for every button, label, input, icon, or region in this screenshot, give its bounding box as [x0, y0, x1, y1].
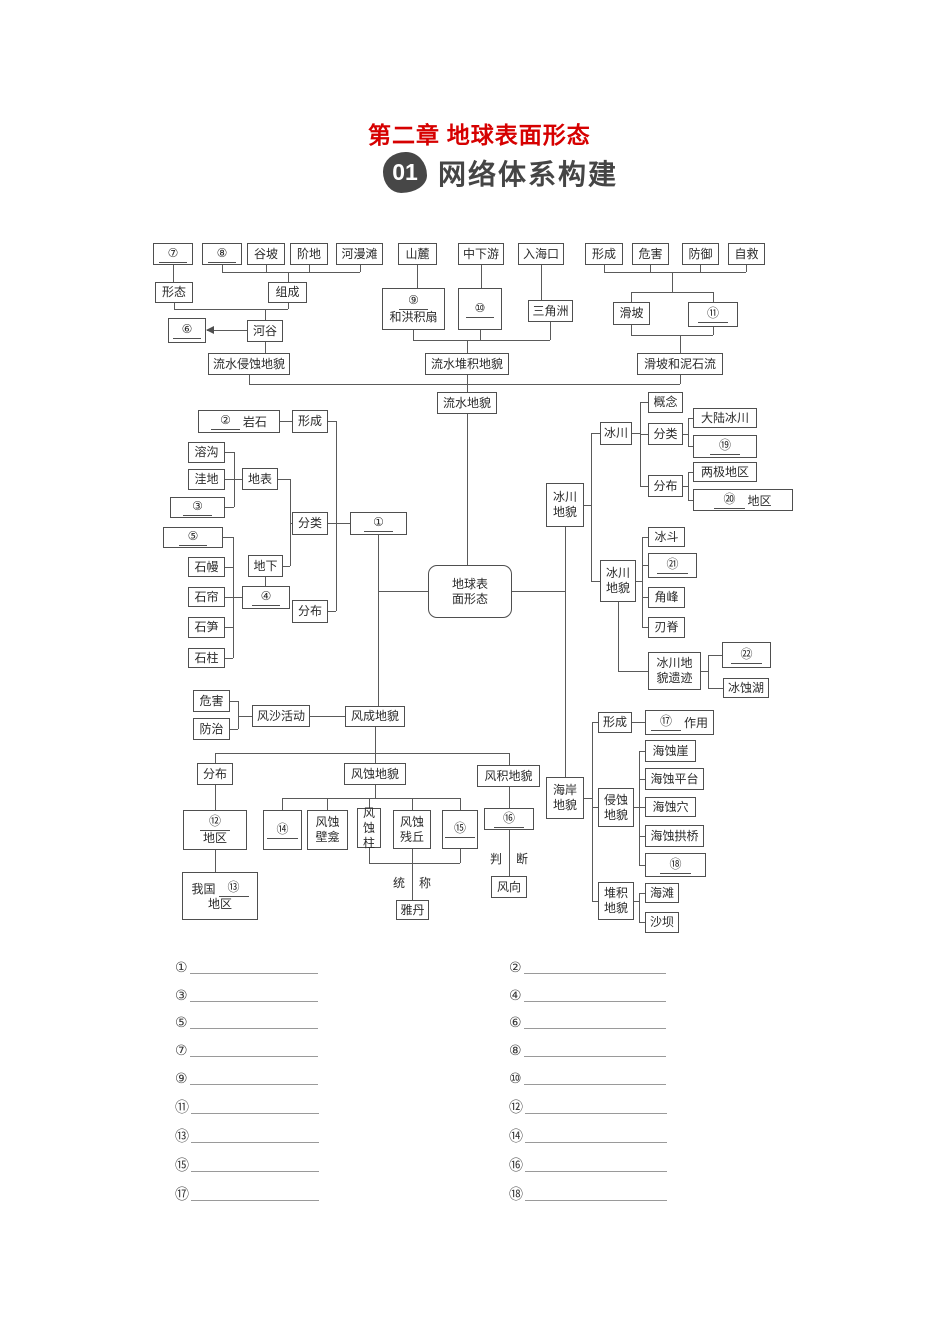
node-formation-slide: 形成	[585, 243, 623, 265]
node-judge-label: 判断	[485, 852, 533, 867]
node-blank-17-action: ⑰作用	[645, 710, 714, 735]
node-text: ⑨	[399, 293, 428, 310]
answer-line	[190, 1043, 318, 1057]
connector-line	[230, 729, 238, 730]
node-text: ⑫	[200, 814, 230, 831]
node-floodplain: 河漫滩	[336, 243, 383, 265]
node-text: 柱	[363, 836, 375, 851]
node-wind-sand-activity: 风沙活动	[252, 705, 310, 727]
node-text: 地区	[208, 897, 232, 912]
answer-number: ⑰	[175, 1187, 189, 1201]
node-cirque: 冰斗	[648, 527, 685, 547]
node-text: 防治	[199, 722, 223, 737]
node-text: 和洪积扇	[389, 310, 437, 325]
connector-line	[680, 375, 681, 384]
node-text: 地区	[748, 494, 772, 509]
node-wind-erosion-niche: 风蚀壁龛	[307, 810, 348, 850]
connector-line	[375, 785, 376, 798]
node-text: 分布	[653, 479, 677, 494]
answer-blank-⑱: ⑱	[509, 1187, 667, 1201]
connector-line	[412, 798, 413, 810]
node-formation-karst: 形成	[292, 410, 328, 433]
node-text: 残丘	[400, 830, 424, 845]
node-wind-erosion-landform: 风蚀地貌	[344, 763, 406, 785]
node-stone-mantle: 石幔	[188, 557, 225, 577]
node-text: 洼地	[194, 472, 218, 487]
connector-line	[280, 421, 292, 422]
connector-line	[225, 567, 233, 568]
answer-number: ①	[175, 960, 188, 974]
node-stone-curtain: 石帘	[188, 587, 225, 607]
connector-line	[512, 591, 565, 592]
node-text: 流水堆积地貌	[431, 357, 503, 372]
node-prevention: 防治	[193, 718, 230, 740]
answer-blank-②: ②	[509, 960, 666, 974]
connector-line	[640, 402, 648, 403]
node-glacier: 冰川	[600, 422, 632, 445]
connector-line	[467, 375, 468, 392]
node-text: ⑭	[267, 822, 297, 839]
node-blank-10: ⑩	[458, 288, 502, 330]
node-stalagmite: 石笋	[188, 617, 225, 638]
node-text: 地球表	[452, 577, 488, 592]
node-text: 雅丹	[400, 903, 424, 918]
connector-line	[640, 434, 648, 435]
node-horn-peak: 角峰	[648, 587, 685, 608]
node-classification-glacier: 分类	[648, 423, 683, 445]
node-text: 大陆冰川	[701, 411, 749, 426]
node-text: 形成	[592, 247, 616, 262]
connector-line	[467, 340, 468, 353]
connector-line	[708, 688, 723, 689]
node-blank-16: ⑯	[484, 808, 534, 830]
node-blank-6: ⑥	[168, 318, 206, 343]
answer-blank-③: ③	[175, 988, 318, 1002]
node-text: 形态	[162, 285, 186, 300]
node-text: 冰川地	[656, 656, 692, 671]
connector-line	[412, 849, 413, 863]
answer-number: ⑯	[509, 1158, 523, 1172]
node-text: 角峰	[654, 590, 678, 605]
connector-line	[509, 753, 510, 765]
node-text: 地区	[203, 831, 227, 846]
node-text: ⑱	[660, 857, 690, 874]
node-text: 分布	[298, 604, 322, 619]
answer-line	[525, 1129, 667, 1143]
connector-line	[713, 292, 714, 302]
connector-line	[640, 486, 648, 487]
connector-line	[249, 375, 250, 384]
node-text: ⑬	[219, 880, 249, 897]
connector-line	[369, 863, 460, 864]
connector-line	[618, 671, 648, 672]
node-text: ⑩	[466, 301, 495, 318]
answer-number: ②	[509, 960, 522, 974]
node-blank-19: ⑲	[693, 435, 757, 458]
node-text: ⑥	[173, 322, 202, 339]
connector-line	[413, 330, 414, 340]
answer-blank-⑬: ⑬	[175, 1129, 319, 1143]
node-text: 蚀	[363, 821, 375, 836]
answer-number: ⑱	[509, 1187, 523, 1201]
node-text: 冰川	[553, 490, 577, 505]
node-formation-coastal: 形成	[598, 712, 632, 733]
node-text: 阶地	[297, 247, 321, 262]
answer-blank-⑥: ⑥	[509, 1015, 666, 1029]
node-text: 风蚀地貌	[351, 767, 399, 782]
connector-line	[375, 727, 376, 753]
node-arete: 刃脊	[648, 617, 685, 638]
answer-line	[524, 1071, 666, 1085]
node-text: 海蚀平台	[650, 772, 698, 787]
node-yardang: 雅丹	[396, 900, 429, 920]
node-blank-22: ㉒	[722, 642, 771, 668]
node-text: 石幔	[194, 560, 218, 575]
node-text: 分类	[298, 516, 322, 531]
node-piedmont: 山麓	[398, 243, 437, 265]
node-text: 我国	[191, 882, 215, 897]
node-beach: 海滩	[645, 883, 679, 903]
node-blank-15: ⑮	[442, 810, 478, 849]
answer-line	[191, 1129, 319, 1143]
node-defense: 防御	[682, 243, 719, 265]
node-blank-3: ③	[170, 497, 225, 518]
node-text: ㉒	[731, 647, 761, 664]
node-concept: 概念	[648, 392, 683, 413]
node-text: 岩石	[243, 415, 267, 430]
answer-line	[525, 1187, 667, 1201]
answer-blank-⑧: ⑧	[509, 1043, 666, 1057]
node-text: 地貌	[553, 798, 577, 813]
node-blank-4: ④	[242, 586, 290, 609]
connector-line	[215, 850, 216, 872]
answer-number: ⑩	[509, 1071, 522, 1085]
connector-line	[591, 433, 600, 434]
node-distribution-karst: 分布	[292, 600, 328, 623]
connector-line	[173, 265, 174, 282]
node-text: 滑坡和泥石流	[644, 357, 716, 372]
node-text: 地貌	[553, 505, 577, 520]
node-text: 自救	[734, 247, 758, 262]
node-text: 刃脊	[654, 620, 678, 635]
node-landslide: 滑坡	[613, 302, 650, 325]
node-text: 侵蚀	[604, 793, 628, 808]
node-river-valley: 河谷	[247, 320, 283, 342]
connector-line	[215, 785, 216, 810]
node-text: ⑰	[651, 714, 681, 731]
answer-blank-①: ①	[175, 960, 318, 974]
node-text: ④	[252, 589, 281, 606]
node-text: 地貌	[604, 808, 628, 823]
node-sea-notch: 海蚀穴	[645, 797, 696, 817]
node-glacial-relics: 冰川地貌遗迹	[648, 652, 701, 690]
node-underground: 地下	[248, 555, 283, 577]
connector-line	[708, 655, 722, 656]
connector-line	[631, 292, 632, 302]
answer-line	[190, 960, 318, 974]
node-blank-14: ⑭	[263, 810, 302, 850]
answer-blank-⑭: ⑭	[509, 1129, 667, 1143]
node-text: 危害	[638, 247, 662, 262]
node-distribution-glacier: 分布	[648, 475, 683, 497]
connector-line	[278, 479, 290, 480]
connector-line	[604, 265, 605, 272]
answer-line	[525, 1158, 667, 1172]
connector-line	[378, 535, 379, 706]
arrowhead-left	[206, 326, 214, 334]
connector-line	[688, 418, 689, 446]
connector-line	[328, 523, 350, 524]
connector-line	[650, 265, 651, 272]
connector-line	[591, 433, 592, 581]
node-valley-slope: 谷坡	[247, 243, 285, 265]
connector-line	[288, 272, 289, 282]
answer-line	[524, 988, 666, 1002]
connector-line	[631, 335, 713, 336]
answer-blank-⑦: ⑦	[175, 1043, 318, 1057]
node-delta: 三角洲	[528, 300, 573, 322]
answer-line	[524, 1015, 666, 1029]
node-composition: 组成	[268, 282, 307, 303]
node-distribution-wind: 分布	[197, 763, 233, 785]
node-text: 海滩	[650, 886, 674, 901]
connector-line	[266, 265, 267, 272]
node-text: 沙坝	[650, 915, 674, 930]
connector-line	[639, 893, 640, 922]
connector-line	[642, 537, 643, 627]
node-text: 地表	[248, 472, 272, 487]
node-continental-glacier: 大陆冰川	[693, 408, 757, 428]
node-text: 断	[516, 852, 528, 867]
answer-blank-⑫: ⑫	[509, 1100, 667, 1114]
node-text: 冰川	[604, 426, 628, 441]
connector-line	[680, 335, 681, 353]
connector-line	[701, 671, 708, 672]
connector-line	[328, 611, 336, 612]
node-text: 风成地貌	[351, 709, 399, 724]
node-text: 作用	[684, 716, 708, 731]
node-text: 面形态	[452, 592, 488, 607]
node-wind-erosion-hill: 风蚀残丘	[393, 810, 431, 849]
connector-line	[591, 581, 600, 582]
connector-line	[249, 384, 680, 385]
node-text: 地貌	[606, 581, 630, 596]
connector-line	[541, 265, 542, 300]
node-text: ⑦	[159, 246, 188, 263]
node-glacial-lake: 冰蚀湖	[723, 678, 769, 698]
answer-number: ⑮	[175, 1158, 189, 1172]
node-mid-lower-reach: 中下游	[458, 243, 504, 265]
connector-line	[265, 577, 266, 586]
answer-blank-⑤: ⑤	[175, 1015, 318, 1029]
connector-line	[584, 505, 591, 506]
connector-line	[328, 421, 336, 422]
answer-blank-⑮: ⑮	[175, 1158, 319, 1172]
connector-line	[360, 265, 361, 272]
node-text: 石帘	[194, 590, 218, 605]
node-text: 判	[490, 852, 502, 867]
connector-line	[481, 265, 482, 288]
node-text: 冰蚀湖	[728, 681, 764, 696]
connector-line	[238, 701, 239, 729]
connector-line	[375, 753, 376, 763]
node-text: 风积地貌	[484, 769, 532, 784]
node-text: 海岸	[553, 783, 577, 798]
connector-line	[215, 753, 216, 763]
answer-line	[190, 1071, 318, 1085]
node-blank-13-our-region: 我国⑬地区	[182, 872, 258, 920]
node-wind-erosion-pillar: 风蚀柱	[357, 808, 381, 848]
node-fluvial-deposition: 流水堆积地貌	[425, 353, 509, 375]
answer-number: ⑭	[509, 1129, 523, 1143]
connector-line	[631, 325, 632, 335]
node-sandbar: 沙坝	[645, 912, 679, 933]
answer-blank-④: ④	[509, 988, 666, 1002]
node-blank-2-rock: ②岩石	[198, 410, 280, 433]
answer-number: ⑥	[509, 1015, 522, 1029]
node-text: ③	[183, 499, 212, 516]
node-text: 石柱	[194, 651, 218, 666]
answer-number: ⑪	[175, 1100, 189, 1114]
connector-line	[746, 265, 747, 272]
node-text: ⑳	[714, 492, 744, 509]
node-wind-deposition-landform: 风积地貌	[477, 765, 540, 787]
node-text: 溶沟	[194, 445, 218, 460]
node-erosion-landform: 侵蚀地貌	[598, 788, 634, 827]
connector-line	[378, 591, 428, 592]
connector-line	[336, 421, 337, 611]
node-sea-arch: 海蚀拱桥	[645, 825, 704, 847]
node-text: 海蚀崖	[652, 744, 688, 759]
node-text: 形成	[603, 715, 627, 730]
node-deposition-landform: 堆积地貌	[598, 882, 634, 920]
node-text: 貌遗迹	[656, 671, 692, 686]
node-text: 风蚀	[400, 815, 424, 830]
node-wind-direction: 风向	[491, 876, 527, 898]
node-polar-region: 两极地区	[693, 462, 757, 482]
connector-line	[640, 402, 641, 486]
node-text: 统	[393, 876, 405, 891]
connector-line	[467, 414, 468, 565]
node-text: 河漫滩	[341, 247, 377, 262]
connector-line	[223, 537, 233, 538]
connector-line	[413, 340, 550, 341]
connector-line	[708, 655, 709, 688]
node-solution-groove: 溶沟	[188, 442, 225, 463]
node-text: 危害	[199, 694, 223, 709]
node-text: ㉑	[657, 557, 687, 574]
node-text: 河谷	[253, 324, 277, 339]
connector-line	[282, 798, 283, 810]
node-blank-9: ⑨和洪积扇	[382, 288, 445, 330]
node-text: 风向	[497, 880, 521, 895]
node-text: 滑坡	[619, 306, 643, 321]
node-coastal-landform: 海岸地貌	[546, 777, 584, 819]
answer-number: ⑫	[509, 1100, 523, 1114]
node-blank-21: ㉑	[648, 553, 697, 578]
node-text: ⑤	[179, 529, 208, 546]
node-surface: 地表	[242, 468, 278, 490]
connector-line	[265, 342, 266, 353]
node-blank-18: ⑱	[645, 853, 706, 877]
node-text: 地下	[253, 559, 277, 574]
answer-number: ③	[175, 988, 188, 1002]
node-text: 冰斗	[654, 530, 678, 545]
node-text: 石笋	[194, 620, 218, 635]
node-text: 分布	[203, 767, 227, 782]
node-text: 中下游	[463, 247, 499, 262]
node-text: 壁龛	[315, 830, 339, 845]
concept-map: ⑦⑧谷坡阶地河漫滩山麓中下游入海口形成危害防御自救形态组成⑨和洪积扇⑩三角洲滑坡…	[0, 0, 950, 950]
connector-line	[215, 753, 509, 754]
connector-line	[283, 566, 290, 567]
node-text: 形成	[298, 414, 322, 429]
node-text: 称	[419, 876, 431, 891]
connector-line	[327, 798, 328, 810]
node-aeolian-landform: 风成地貌	[345, 706, 405, 727]
answer-number: ⑨	[175, 1071, 188, 1085]
answer-line	[525, 1100, 667, 1114]
node-text: 风	[363, 806, 375, 821]
node-blank-8: ⑧	[202, 243, 242, 265]
node-glacial-landform-main: 冰川地貌	[546, 483, 584, 527]
node-landslide-debris-flow: 滑坡和泥石流	[637, 353, 723, 375]
node-blank-12-region: ⑫地区	[183, 810, 247, 850]
node-terrace: 阶地	[290, 243, 328, 265]
node-text: 流水地貌	[443, 396, 491, 411]
node-self-rescue: 自救	[728, 243, 765, 265]
node-text: 防御	[688, 247, 712, 262]
answer-blank-⑯: ⑯	[509, 1158, 667, 1172]
connector-line	[509, 787, 510, 808]
connector-line	[565, 527, 566, 777]
connector-line	[460, 849, 461, 863]
node-text: 冰川	[606, 566, 630, 581]
connector-line	[480, 330, 481, 340]
node-text: 概念	[653, 395, 677, 410]
node-text: 海蚀穴	[652, 800, 688, 815]
answer-blank-⑪: ⑪	[175, 1100, 319, 1114]
node-text: ⑪	[698, 306, 728, 323]
answer-line	[524, 960, 666, 974]
node-text: 组成	[275, 285, 299, 300]
connector-line	[265, 309, 266, 320]
node-fluvial-erosion: 流水侵蚀地貌	[208, 353, 290, 375]
connector-line	[632, 433, 640, 434]
connector-line	[584, 798, 592, 799]
node-hazard-slide: 危害	[632, 243, 669, 265]
connector-line	[713, 327, 714, 335]
node-text: ②	[211, 413, 240, 430]
connector-line	[604, 272, 746, 273]
node-text: 风蚀	[315, 815, 339, 830]
node-blank-7: ⑦	[153, 243, 193, 265]
connector-line	[225, 479, 242, 480]
node-text: 三角洲	[532, 304, 568, 319]
connector-line	[225, 507, 234, 508]
answer-blank-⑩: ⑩	[509, 1071, 666, 1085]
connector-line	[550, 322, 551, 340]
answer-blank-⑨: ⑨	[175, 1071, 318, 1085]
connector-line	[417, 265, 418, 288]
node-glacial-landform-sub: 冰川地貌	[600, 560, 636, 602]
answer-blank-⑰: ⑰	[175, 1187, 319, 1201]
connector-line	[225, 452, 234, 453]
answer-number: ⑬	[175, 1129, 189, 1143]
node-text: ⑯	[494, 811, 524, 828]
node-text: 地貌	[604, 901, 628, 916]
connector-line	[592, 722, 593, 901]
